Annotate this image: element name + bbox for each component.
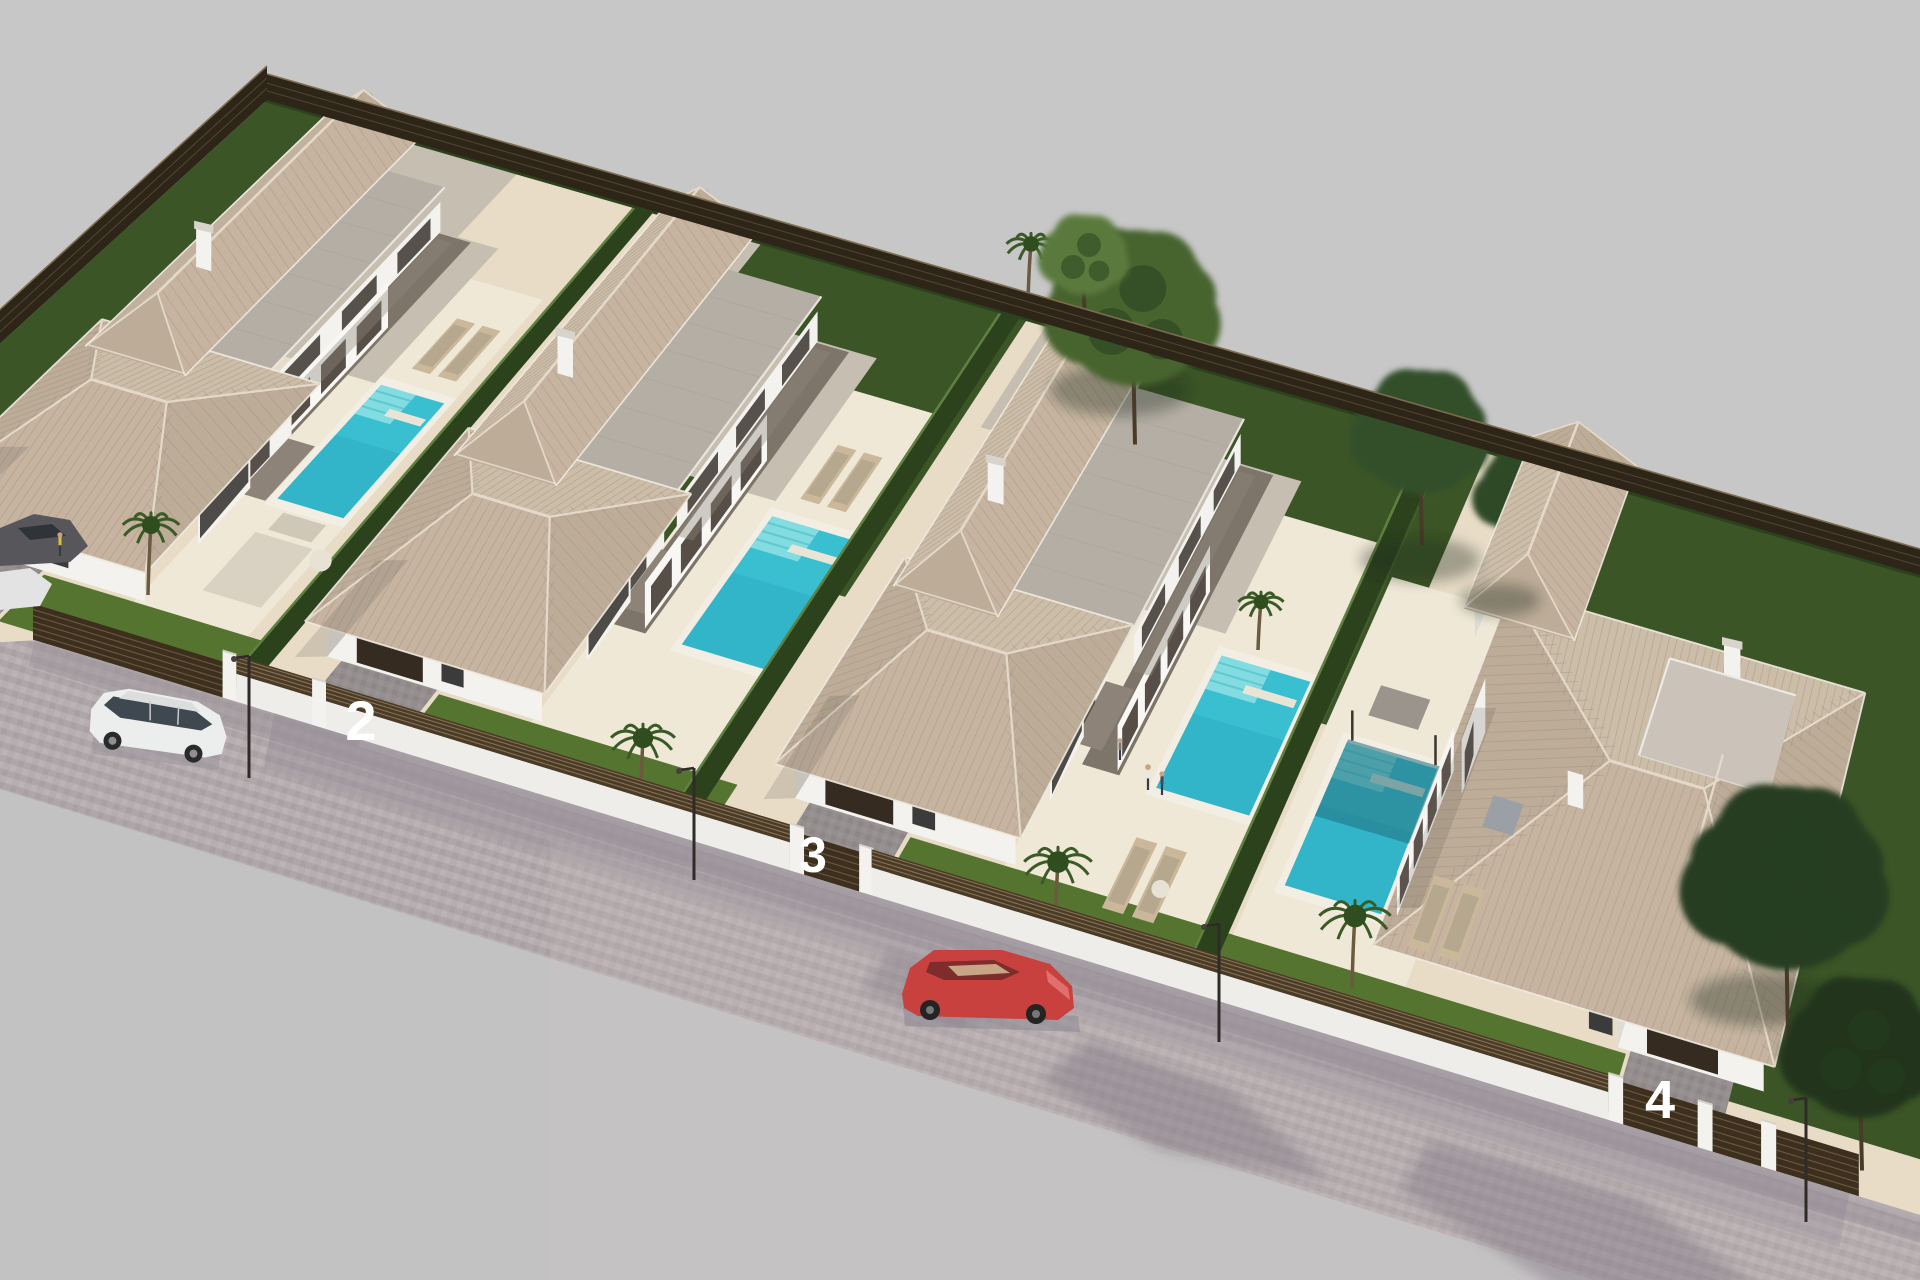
svg-text:3: 3 xyxy=(799,827,827,883)
svg-text:4: 4 xyxy=(1645,1070,1675,1130)
svg-text:2: 2 xyxy=(345,689,376,752)
